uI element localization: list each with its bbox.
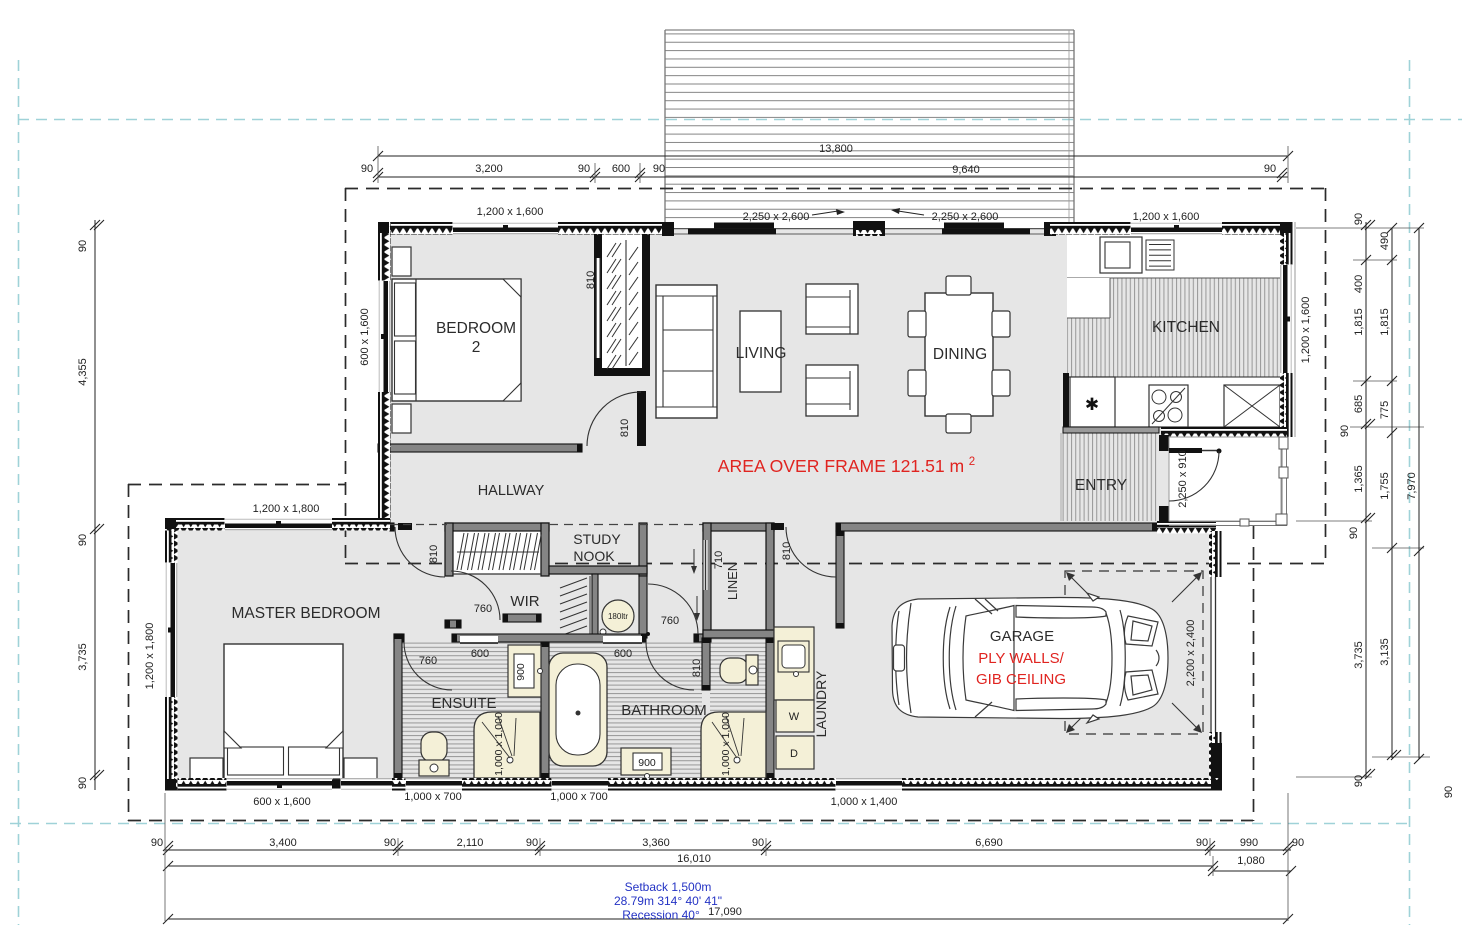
svg-text:600: 600 [471, 648, 489, 660]
svg-text:760: 760 [419, 655, 437, 667]
svg-text:LINEN: LINEN [725, 562, 740, 600]
svg-text:600 x 1,600: 600 x 1,600 [253, 796, 311, 808]
svg-text:90: 90 [1196, 837, 1208, 849]
svg-text:90: 90 [384, 837, 396, 849]
svg-text:13,800: 13,800 [819, 143, 853, 155]
svg-text:90: 90 [151, 837, 163, 849]
svg-text:685: 685 [1353, 395, 1365, 413]
svg-text:GIB CEILING: GIB CEILING [976, 671, 1066, 688]
svg-text:BEDROOM: BEDROOM [436, 320, 516, 337]
svg-text:AREA OVER FRAME 121.51 m: AREA OVER FRAME 121.51 m [718, 456, 964, 476]
svg-text:1,815: 1,815 [1353, 308, 1365, 336]
svg-text:Setback 1,500m: Setback 1,500m [625, 880, 712, 894]
svg-text:600: 600 [612, 163, 630, 175]
svg-text:90: 90 [578, 163, 590, 175]
svg-text:1,365: 1,365 [1353, 465, 1365, 493]
svg-text:90: 90 [1353, 213, 1365, 225]
svg-text:NOOK: NOOK [573, 548, 615, 564]
svg-text:16,010: 16,010 [677, 853, 711, 865]
svg-text:ENSUITE: ENSUITE [431, 695, 496, 712]
svg-text:2,250 x 2,600: 2,250 x 2,600 [743, 211, 810, 223]
svg-text:90: 90 [361, 163, 373, 175]
svg-text:1,000 x 1,000: 1,000 x 1,000 [493, 712, 505, 776]
svg-text:3,200: 3,200 [475, 163, 503, 175]
svg-text:1,000 x 1,000: 1,000 x 1,000 [720, 712, 732, 776]
svg-text:3,735: 3,735 [1353, 641, 1365, 669]
svg-text:90: 90 [752, 837, 764, 849]
svg-text:90: 90 [77, 534, 89, 546]
svg-text:3,360: 3,360 [642, 837, 670, 849]
svg-text:990: 990 [1240, 837, 1258, 849]
svg-text:2,250 x 910: 2,250 x 910 [1177, 450, 1189, 508]
svg-text:✱: ✱ [1085, 395, 1099, 414]
svg-text:3,735: 3,735 [77, 643, 89, 671]
svg-text:GARAGE: GARAGE [990, 628, 1054, 645]
svg-text:2,110: 2,110 [457, 837, 484, 849]
svg-text:WIR: WIR [510, 593, 539, 610]
svg-text:1,200 x 1,600: 1,200 x 1,600 [477, 206, 544, 218]
svg-text:LAUNDRY: LAUNDRY [813, 670, 829, 737]
svg-text:810: 810 [585, 271, 597, 289]
svg-text:90: 90 [1353, 775, 1365, 787]
svg-text:2,200 x 2,400: 2,200 x 2,400 [1185, 620, 1197, 687]
svg-text:810: 810 [619, 419, 631, 437]
svg-text:90: 90 [1348, 527, 1360, 539]
svg-text:2,250 x 2,600: 2,250 x 2,600 [932, 211, 999, 223]
svg-text:810: 810 [781, 542, 793, 560]
svg-text:1,200 x 1,600: 1,200 x 1,600 [1300, 297, 1312, 364]
svg-text:900: 900 [515, 663, 527, 681]
svg-text:1,815: 1,815 [1379, 308, 1391, 336]
svg-text:LIVING: LIVING [736, 345, 787, 362]
svg-text:180ltr: 180ltr [608, 612, 628, 621]
svg-text:BATHROOM: BATHROOM [621, 702, 707, 719]
svg-text:2: 2 [472, 339, 481, 356]
svg-text:1,080: 1,080 [1237, 855, 1265, 867]
svg-text:9,640: 9,640 [952, 164, 980, 176]
svg-text:90: 90 [653, 163, 665, 175]
svg-text:PLY WALLS/: PLY WALLS/ [978, 650, 1064, 667]
svg-text:90: 90 [526, 837, 538, 849]
svg-text:STUDY: STUDY [573, 531, 621, 547]
svg-text:3,135: 3,135 [1379, 638, 1391, 666]
svg-text:1,000 x 1,400: 1,000 x 1,400 [831, 796, 898, 808]
svg-text:490: 490 [1379, 232, 1391, 250]
svg-text:775: 775 [1379, 401, 1391, 419]
svg-text:1,200 x 1,600: 1,200 x 1,600 [1133, 211, 1200, 223]
svg-text:3,400: 3,400 [269, 837, 297, 849]
svg-text:1,000 x 700: 1,000 x 700 [404, 791, 462, 803]
svg-text:810: 810 [691, 659, 703, 677]
svg-text:MASTER BEDROOM: MASTER BEDROOM [232, 605, 381, 622]
svg-text:760: 760 [474, 603, 492, 615]
svg-text:90: 90 [77, 777, 89, 789]
svg-text:90: 90 [1264, 163, 1276, 175]
svg-text:710: 710 [713, 551, 725, 569]
svg-text:6,690: 6,690 [975, 837, 1003, 849]
svg-text:7,970: 7,970 [1406, 472, 1418, 500]
svg-text:4,355: 4,355 [77, 358, 89, 386]
svg-text:90: 90 [1292, 837, 1304, 849]
svg-text:1,200 x 1,800: 1,200 x 1,800 [144, 623, 156, 690]
svg-text:W: W [789, 711, 800, 723]
svg-text:ENTRY: ENTRY [1075, 477, 1127, 494]
svg-text:90: 90 [1339, 425, 1351, 437]
svg-text:1,200 x 1,800: 1,200 x 1,800 [253, 503, 320, 515]
svg-text:HALLWAY: HALLWAY [478, 483, 545, 499]
svg-text:28.79m 314° 40' 41": 28.79m 314° 40' 41" [614, 894, 722, 908]
svg-text:810: 810 [428, 545, 440, 563]
svg-text:D: D [790, 748, 798, 760]
svg-text:760: 760 [661, 615, 679, 627]
svg-text:Recession 40°: Recession 40° [622, 908, 700, 922]
svg-text:600: 600 [614, 648, 632, 660]
svg-text:400: 400 [1353, 275, 1365, 293]
svg-text:2: 2 [969, 456, 975, 468]
svg-text:90: 90 [77, 240, 89, 252]
svg-text:1,755: 1,755 [1379, 472, 1391, 500]
svg-text:1,000 x 700: 1,000 x 700 [550, 791, 608, 803]
svg-text:900: 900 [638, 757, 656, 769]
svg-text:600 x 1,600: 600 x 1,600 [359, 308, 371, 366]
svg-text:KITCHEN: KITCHEN [1152, 319, 1220, 336]
svg-text:DINING: DINING [933, 346, 987, 363]
svg-text:90: 90 [1443, 786, 1455, 798]
